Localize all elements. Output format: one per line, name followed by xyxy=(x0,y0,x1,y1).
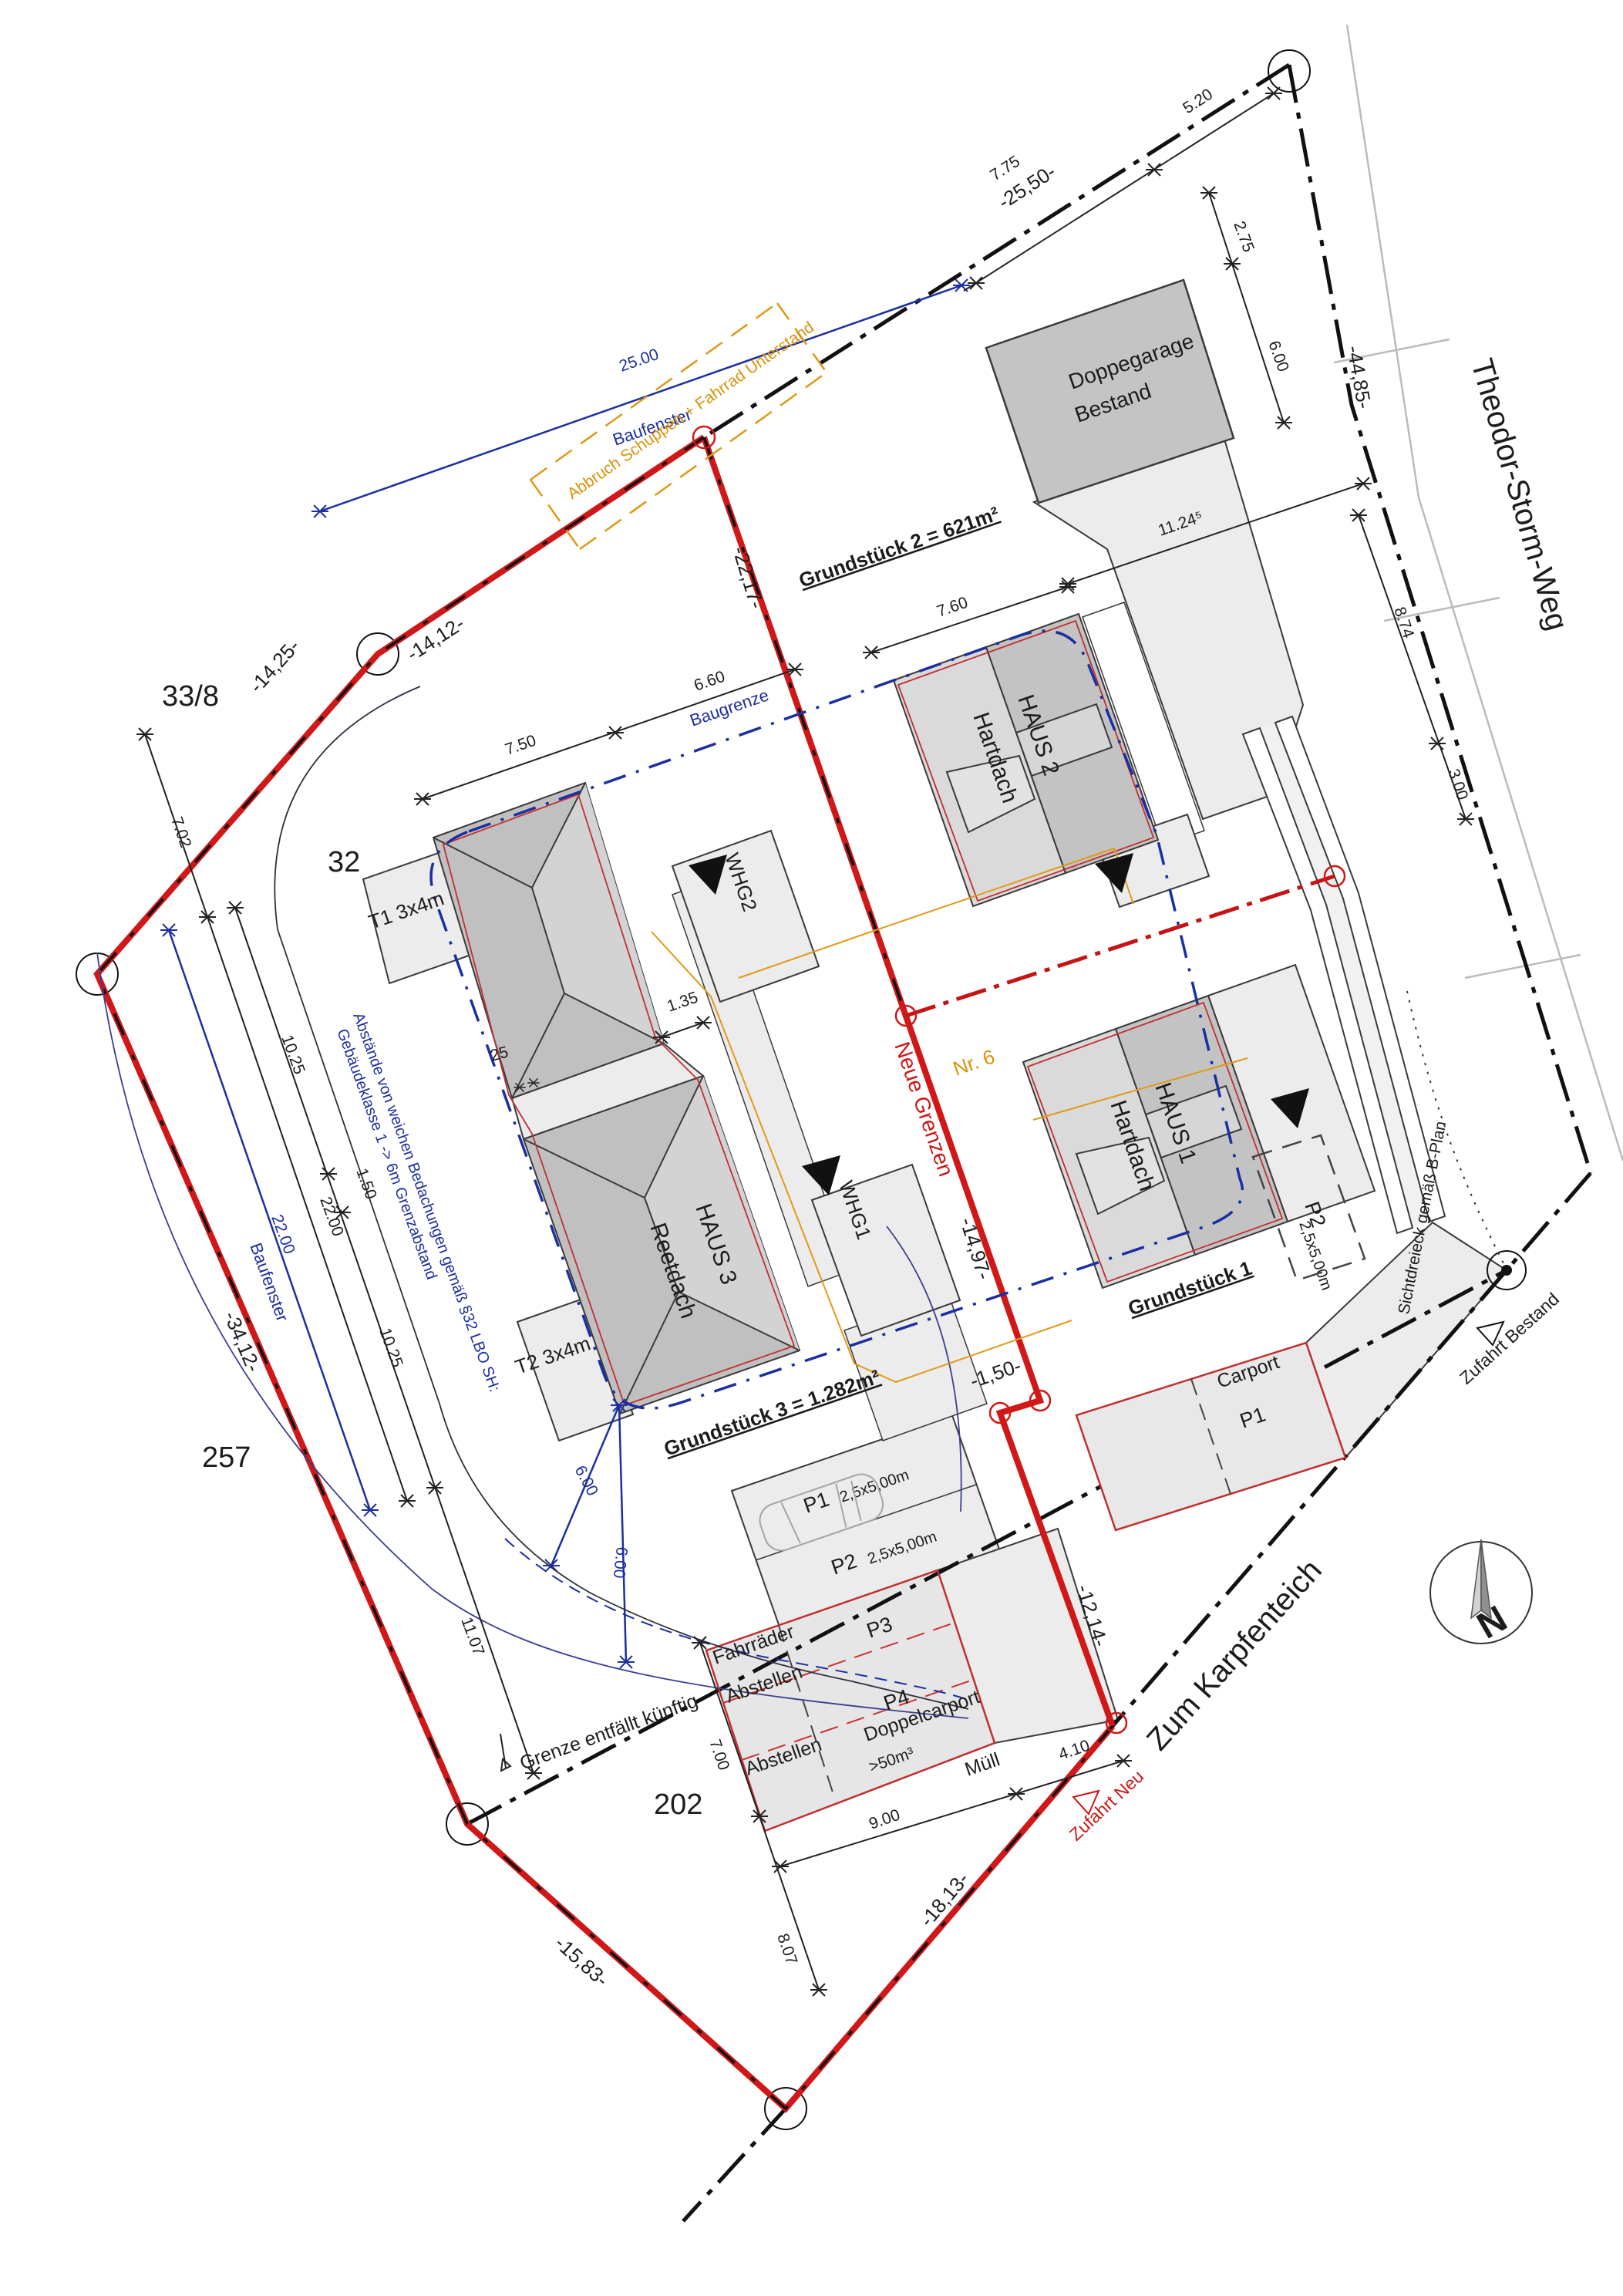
svg-text:32: 32 xyxy=(328,846,360,878)
svg-text:6.00: 6.00 xyxy=(610,1546,631,1579)
svg-text:257: 257 xyxy=(202,1441,251,1474)
svg-text:33/8: 33/8 xyxy=(162,680,219,713)
svg-text:202: 202 xyxy=(654,1789,702,1821)
